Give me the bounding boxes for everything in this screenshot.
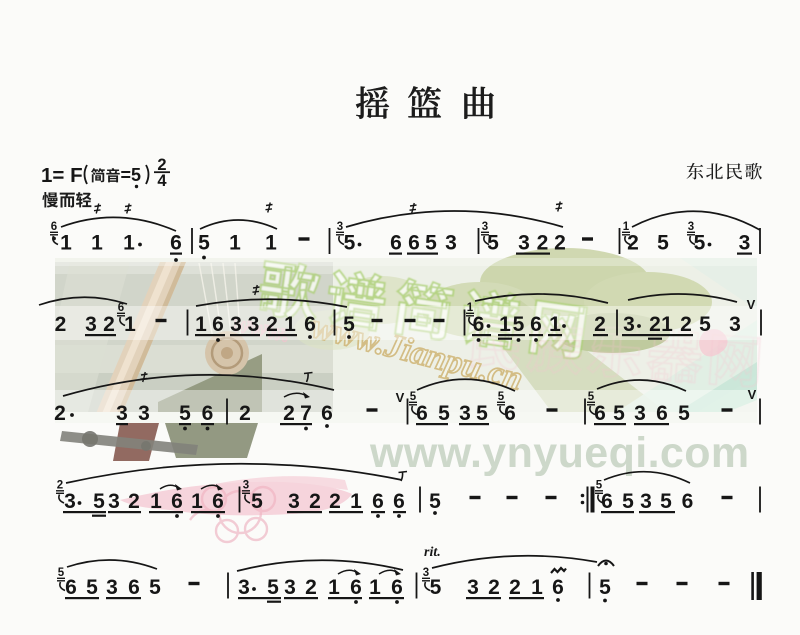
svg-text:5: 5 [149,576,161,599]
svg-text:1= F: 1= F [41,164,83,187]
svg-text:5: 5 [588,391,595,403]
svg-text:1: 1 [623,221,630,233]
svg-text:3: 3 [243,480,249,492]
svg-text:6: 6 [118,302,124,314]
svg-text:2: 2 [55,313,67,336]
svg-text:6: 6 [212,313,224,336]
svg-text:www.ynyueqi.com: www.ynyueqi.com [369,429,750,477]
svg-text:3: 3 [106,576,118,599]
svg-text:1: 1 [91,232,103,255]
svg-text:1: 1 [124,313,136,336]
svg-text:1: 1 [531,576,543,599]
svg-text:6: 6 [594,402,606,425]
svg-text:2: 2 [329,490,341,513]
svg-text:5: 5 [438,402,450,425]
svg-text:6: 6 [391,576,403,599]
svg-text:6: 6 [321,402,333,425]
svg-text:6: 6 [65,576,77,599]
svg-text:3: 3 [116,402,128,425]
svg-text:1: 1 [350,490,362,513]
svg-text:1: 1 [150,490,162,513]
svg-text:5: 5 [513,313,525,336]
svg-text:1: 1 [123,232,135,255]
svg-text:6: 6 [408,232,420,255]
svg-text:=5: =5 [121,165,142,185]
svg-text:6: 6 [171,490,183,513]
svg-text:5: 5 [343,313,355,336]
svg-text:5: 5 [699,313,711,336]
svg-text:5: 5 [251,490,263,513]
svg-text:3: 3 [64,490,76,513]
svg-text:3: 3 [623,313,635,336]
svg-text:2: 2 [554,232,566,255]
svg-text:6: 6 [393,490,405,513]
svg-text:2: 2 [305,576,317,599]
svg-text:1: 1 [549,313,561,336]
svg-text:6: 6 [170,232,182,255]
svg-text:1: 1 [661,313,673,336]
svg-text:5: 5 [599,576,611,599]
svg-text:5: 5 [694,232,706,255]
svg-text:2: 2 [680,313,692,336]
svg-text:5: 5 [596,480,603,492]
svg-text:5: 5 [498,391,505,403]
svg-text:V: V [748,387,757,402]
svg-text:3: 3 [138,402,150,425]
svg-text:5: 5 [429,490,441,513]
svg-text:5: 5 [660,490,672,513]
svg-text:1: 1 [229,232,241,255]
svg-text:3: 3 [729,313,741,336]
svg-text:6: 6 [390,232,402,255]
svg-text:6: 6 [682,490,694,513]
svg-text:5: 5 [678,402,690,425]
svg-text:6: 6 [304,313,316,336]
svg-text:2: 2 [309,490,321,513]
svg-text:2: 2 [649,313,661,336]
svg-text:5: 5 [93,490,105,513]
svg-text:5: 5 [430,576,442,599]
svg-text:5: 5 [476,402,488,425]
svg-text:6: 6 [416,402,428,425]
svg-text:5: 5 [410,391,417,403]
svg-text:5: 5 [198,232,210,255]
svg-text:1: 1 [284,313,296,336]
svg-text:3: 3 [284,576,296,599]
svg-text:4: 4 [157,172,167,190]
svg-text:6: 6 [372,490,384,513]
svg-text:3: 3 [248,313,260,336]
svg-text:3: 3 [230,313,242,336]
svg-text:2: 2 [54,402,66,425]
svg-text:3: 3 [518,232,530,255]
svg-text:5: 5 [58,567,65,579]
svg-text:2: 2 [283,402,295,425]
svg-text:1: 1 [499,313,511,336]
svg-text:6: 6 [552,576,564,599]
svg-text:2: 2 [57,480,63,492]
svg-text:2: 2 [128,490,140,513]
svg-text:2: 2 [594,313,606,336]
svg-text:3: 3 [85,313,97,336]
svg-text:3: 3 [739,232,751,255]
svg-text:3: 3 [423,567,429,579]
svg-text:6: 6 [473,313,485,336]
svg-text:6: 6 [212,490,224,513]
svg-text:2: 2 [488,576,500,599]
svg-text:5: 5 [657,232,669,255]
svg-text:V: V [747,297,756,312]
svg-text:rit.: rit. [424,545,441,560]
svg-text:5: 5 [622,490,634,513]
svg-text:2: 2 [509,576,521,599]
svg-text:3: 3 [482,221,488,233]
svg-text:3: 3 [459,402,471,425]
svg-text:3: 3 [337,221,343,233]
svg-text:3: 3 [108,490,120,513]
svg-text:1: 1 [60,232,72,255]
svg-text:7: 7 [300,402,312,425]
svg-text:3: 3 [467,576,479,599]
svg-text:6: 6 [350,576,362,599]
svg-text:3: 3 [445,232,457,255]
svg-text:6: 6 [530,313,542,336]
svg-text:6: 6 [202,402,214,425]
svg-text:2: 2 [537,232,549,255]
svg-text:5: 5 [425,232,437,255]
svg-text:3: 3 [640,490,652,513]
svg-text:3: 3 [288,490,300,513]
svg-text:1: 1 [467,302,474,314]
svg-text:5: 5 [344,232,356,255]
svg-text:1: 1 [195,313,207,336]
svg-text:5: 5 [86,576,98,599]
svg-text:5: 5 [179,402,191,425]
svg-text:2: 2 [239,402,251,425]
svg-text:3: 3 [634,402,646,425]
svg-text:6: 6 [656,402,668,425]
svg-text:6: 6 [51,221,57,233]
svg-text:6: 6 [504,402,516,425]
svg-text:1: 1 [328,576,340,599]
svg-text:5: 5 [267,576,279,599]
svg-text:3: 3 [688,221,694,233]
svg-text:1: 1 [369,576,381,599]
svg-text:V: V [396,390,405,405]
svg-text:2: 2 [266,313,278,336]
svg-text:3: 3 [238,576,250,599]
svg-text:6: 6 [128,576,140,599]
svg-text:1: 1 [191,490,203,513]
svg-text:2: 2 [103,313,115,336]
svg-text:1: 1 [265,232,277,255]
svg-text:5: 5 [613,402,625,425]
